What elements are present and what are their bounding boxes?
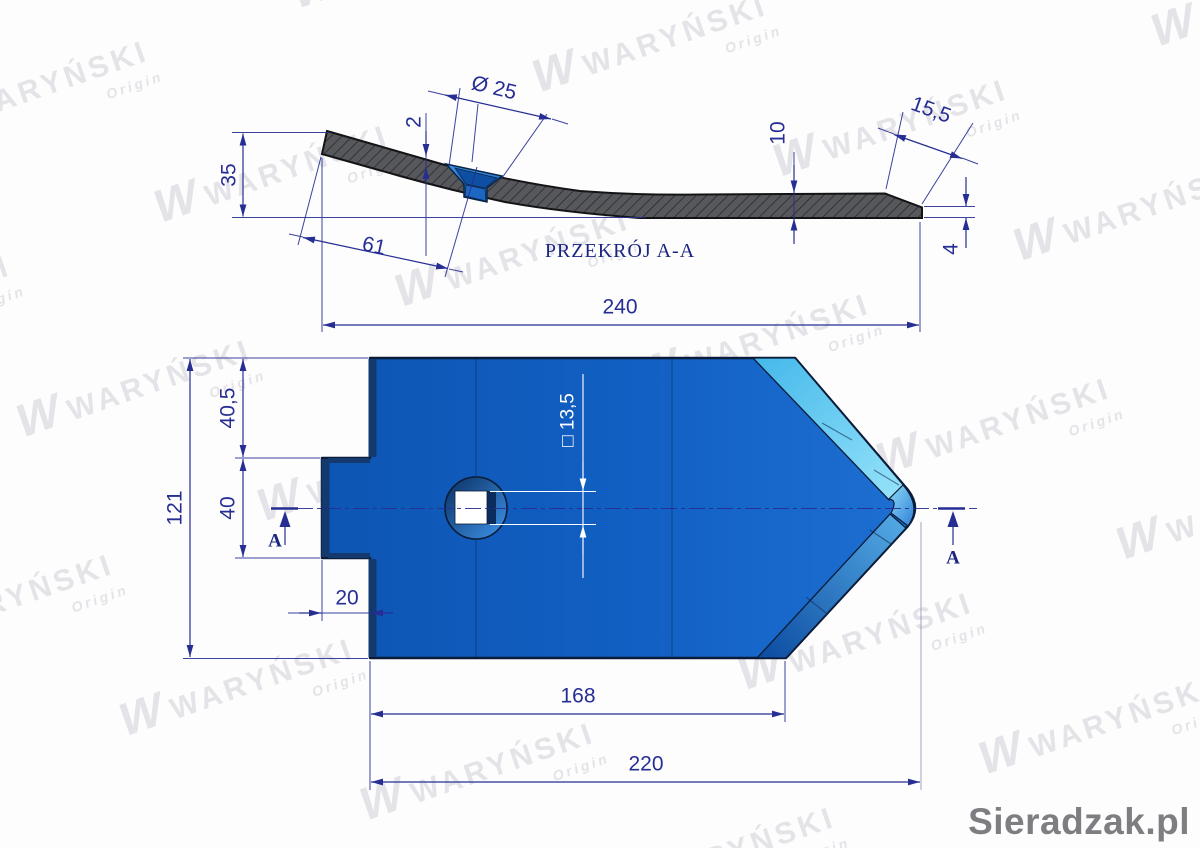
drawing-page: WWARYŃSKIOriginWWARYŃSKIOriginWWARYŃSKIO… — [0, 0, 1200, 848]
dim-text-240: 240 — [602, 296, 637, 319]
dim-text-10: 10 — [767, 121, 790, 144]
dim-text-61: 61 — [360, 232, 388, 260]
section-label-a-left: A — [268, 531, 282, 552]
dim-countersink-depth: 2 — [403, 113, 427, 256]
dim-text-4: 4 — [940, 243, 963, 255]
blade-cross-section — [322, 131, 922, 218]
site-logo: Sieradzak.pl — [968, 803, 1190, 840]
dim-text-220: 220 — [628, 753, 663, 776]
dim-text-40: 40 — [217, 496, 240, 519]
dim-text-20: 20 — [335, 587, 358, 610]
hole-centerline — [472, 104, 478, 162]
dim-text-168: 168 — [560, 685, 595, 708]
dim-edge-bevel-length: 15,5 — [878, 92, 978, 204]
dim-upper-edge-to-tab: 40,5 — [217, 359, 321, 458]
technical-drawing: 35 61 2 — [0, 0, 1200, 848]
dim-text-35: 35 — [218, 163, 241, 186]
dim-body-length: 168 — [370, 661, 785, 790]
dim-text-d25: Ø 25 — [469, 72, 519, 105]
dim-text-155: 15,5 — [908, 92, 954, 128]
dim-text-square-135: □ 13,5 — [558, 393, 579, 447]
dim-hole-diameter: Ø 25 — [428, 72, 568, 178]
dim-text-121: 121 — [164, 490, 187, 525]
dim-text-405: 40,5 — [217, 388, 240, 429]
dim-text-2: 2 — [403, 116, 426, 128]
plan-view: A A 121 40,5 — [164, 358, 978, 790]
section-title: PRZEKRÓJ A-A — [545, 238, 695, 262]
dim-plate-thickness: 10 — [767, 121, 795, 244]
section-view: 35 61 2 — [218, 72, 979, 332]
section-marker-right: A — [938, 509, 965, 569]
section-label-a-right: A — [946, 548, 960, 569]
section-marker-left: A — [268, 509, 298, 552]
